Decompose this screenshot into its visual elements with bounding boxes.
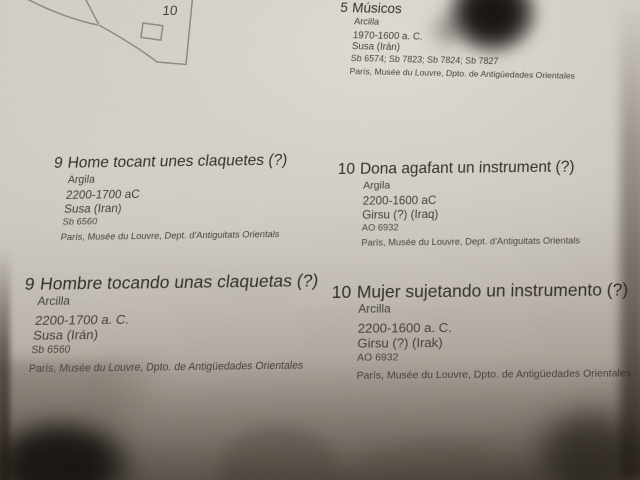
entry-number: 9 [24,275,36,294]
entry-number: 10 [332,283,352,302]
entry-title: Mujer sujetando un instrumento (?) [357,279,629,301]
entry-title: Músicos [352,0,403,16]
catalog-number-line: Sb 6560 [62,213,282,227]
museum-credit-line: París, Musée du Louvre, Dpto. de Antigüe… [349,67,575,82]
material-line: Argila [67,171,287,186]
place-line: Girsu (?) (Irak) [357,333,632,350]
catalog-number-line: AO 6932 [362,220,581,233]
exhibit-entry-5-es: 5Músicos Arcilla 1970-1600 a. C. Susa (I… [334,1,581,81]
material-line: Arcilla [358,300,633,316]
entry-title: Home tocant unes claquetes (?) [67,152,289,172]
material-line: Argila [363,177,582,191]
entry-title-row: 10Mujer sujetando un instrumento (?) [332,280,634,302]
material-line: Arcilla [37,292,317,309]
exhibit-entry-9-ca: 9Home tocant unes claquetes (?) Argila 2… [44,153,290,243]
entry-title-row: 10Dona agafant un instrument (?) [337,159,582,178]
shoulder-silhouette-shadow [325,442,555,480]
entry-number: 5 [340,1,349,16]
right-edge-shadow [620,0,640,480]
catalog-number-line: AO 6932 [357,349,632,363]
case-divider-line [85,0,99,24]
exhibit-entry-10-ca: 10Dona agafant un instrument (?) Argila … [335,159,583,248]
exhibit-entry-9-es: 9Hombre tocando unas claquetas (?) Arcil… [13,271,319,375]
bottom-left-corner-shadow [0,395,170,480]
museum-label-photo: 10 5Músicos Arcilla 1970-1600 a. C. Susa… [0,0,640,480]
exhibit-entry-10-es: 10Mujer sujetando un instrumento (?) Arc… [329,280,633,382]
floor-plan-diagram: 10 [0,0,220,80]
entry-title-row: 9Home tocant unes claquetes (?) [53,153,290,173]
museum-credit-line: París, Musée du Louvre, Dpto. de Antigüe… [356,367,631,381]
museum-credit-line: París, Musée du Louvre, Dept. d'Antiguit… [60,228,280,242]
head-silhouette-shadow [220,425,338,480]
case-number-label: 10 [162,3,179,18]
left-edge-shadow [0,250,10,480]
museum-credit-line: París, Musée du Louvre, Dpto. de Antigüe… [28,359,308,374]
bottom-right-corner-shadow [500,380,640,480]
diagonal-shadow-left [0,360,270,480]
case-wall-lines [99,0,193,65]
display-case-arc [25,0,98,25]
entry-number: 9 [53,156,64,173]
entry-number: 10 [337,162,355,179]
entry-title: Dona agafant un instrument (?) [360,159,575,178]
case-marker-square [141,23,163,40]
museum-credit-line: París, Musée du Louvre, Dept. d'Antiguit… [361,235,580,248]
entry-title-row: 9Hombre tocando unas claquetas (?) [24,271,320,294]
entry-title: Hombre tocando unas claquetas (?) [39,270,320,293]
catalog-number-line: Sb 6560 [31,340,311,355]
